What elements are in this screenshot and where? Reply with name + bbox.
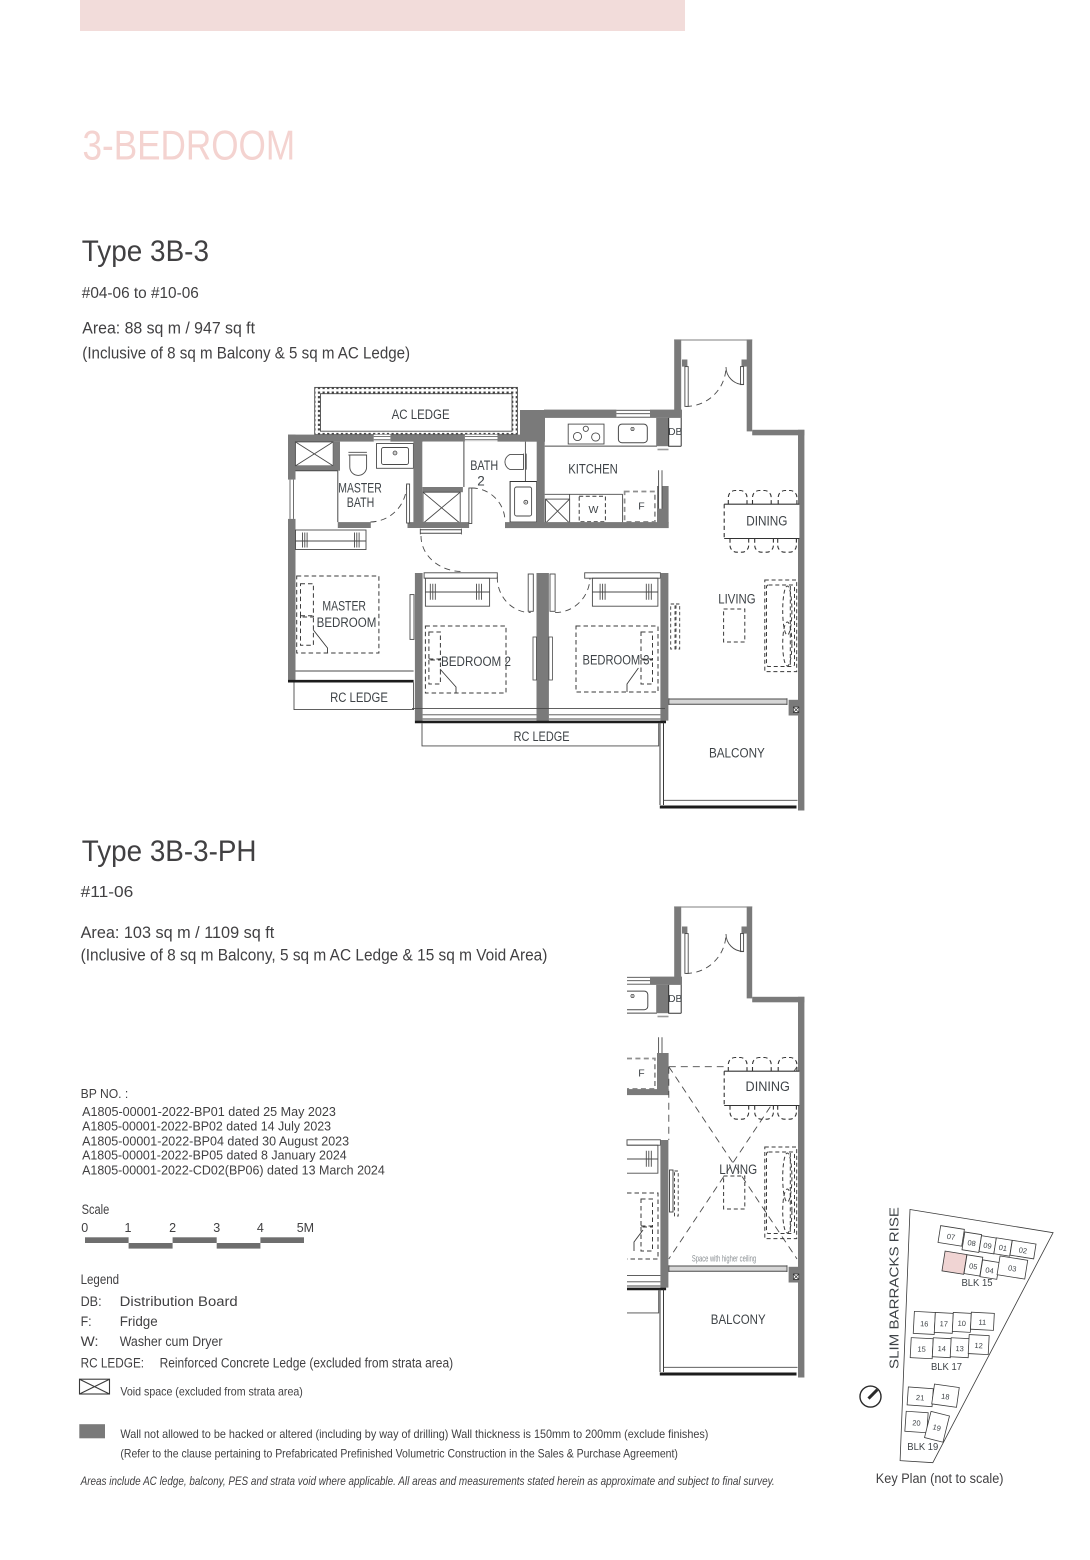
svg-text:F: F bbox=[638, 1068, 644, 1080]
svg-text:Area: 88 sq m / 947 sq ft: Area: 88 sq m / 947 sq ft bbox=[82, 320, 255, 338]
svg-text:01: 01 bbox=[998, 1243, 1008, 1253]
svg-text:MASTER: MASTER bbox=[322, 599, 366, 614]
svg-text:RC LEDGE: RC LEDGE bbox=[514, 729, 570, 744]
svg-text:Wall not allowed to be hacked: Wall not allowed to be hacked or altered… bbox=[120, 1427, 708, 1441]
svg-text:W: W bbox=[589, 504, 599, 516]
svg-text:07: 07 bbox=[946, 1232, 956, 1242]
svg-text:#04-06 to #10-06: #04-06 to #10-06 bbox=[82, 285, 199, 302]
svg-text:(Inclusive of 8 sq m Balcony &: (Inclusive of 8 sq m Balcony & 5 sq m AC… bbox=[82, 345, 410, 363]
svg-text:Washer cum Dryer: Washer cum Dryer bbox=[120, 1334, 223, 1349]
svg-text:BALCONY: BALCONY bbox=[711, 1312, 766, 1327]
svg-text:11: 11 bbox=[978, 1318, 986, 1327]
svg-text:17: 17 bbox=[939, 1319, 948, 1328]
svg-text:12: 12 bbox=[974, 1341, 983, 1350]
svg-text:Fridge: Fridge bbox=[120, 1314, 158, 1329]
svg-text:Areas include AC ledge, balcon: Areas include AC ledge, balcony, PES and… bbox=[80, 1474, 775, 1488]
svg-text:Type 3B-3: Type 3B-3 bbox=[82, 235, 209, 268]
svg-text:03: 03 bbox=[1007, 1263, 1017, 1273]
svg-text:16: 16 bbox=[920, 1319, 929, 1328]
svg-text:DB:: DB: bbox=[81, 1294, 102, 1309]
svg-text:F: F bbox=[638, 501, 644, 513]
svg-text:RC LEDGE: RC LEDGE bbox=[330, 690, 388, 705]
svg-text:04: 04 bbox=[985, 1265, 995, 1275]
svg-text:20: 20 bbox=[912, 1418, 921, 1428]
svg-text:DB: DB bbox=[668, 993, 682, 1005]
svg-text:DB: DB bbox=[668, 426, 682, 438]
svg-text:Area: 103 sq m / 1109 sq ft: Area: 103 sq m / 1109 sq ft bbox=[81, 924, 275, 942]
svg-text:F:: F: bbox=[81, 1314, 92, 1329]
svg-text:A1805-00001-2022-BP02 dated 14: A1805-00001-2022-BP02 dated 14 July 2023 bbox=[82, 1118, 331, 1133]
svg-text:BLK 19: BLK 19 bbox=[907, 1441, 938, 1453]
svg-text:BP NO. :: BP NO. : bbox=[81, 1086, 129, 1101]
svg-text:1: 1 bbox=[125, 1221, 132, 1235]
svg-text:A1805-00001-2022-CD02(BP06) da: A1805-00001-2022-CD02(BP06) dated 13 Mar… bbox=[82, 1163, 385, 1178]
svg-text:4: 4 bbox=[257, 1221, 264, 1235]
svg-text:SLIM BARRACKS RISE: SLIM BARRACKS RISE bbox=[888, 1207, 902, 1369]
svg-text:08: 08 bbox=[967, 1238, 977, 1248]
svg-text:BLK 15: BLK 15 bbox=[962, 1277, 993, 1289]
svg-text:18: 18 bbox=[941, 1392, 951, 1402]
svg-text:BATH: BATH bbox=[347, 495, 375, 510]
svg-text:A1805-00001-2022-BP04 dated 30: A1805-00001-2022-BP04 dated 30 August 20… bbox=[82, 1133, 349, 1148]
svg-text:LIVING: LIVING bbox=[719, 1162, 757, 1177]
svg-text:10: 10 bbox=[957, 1319, 966, 1328]
svg-text:Space with higher ceiling: Space with higher ceiling bbox=[692, 1254, 756, 1264]
svg-text:09: 09 bbox=[983, 1241, 993, 1251]
svg-text:A1805-00001-2022-BP05 dated 8: A1805-00001-2022-BP05 dated 8 January 20… bbox=[82, 1148, 347, 1163]
svg-text:W:: W: bbox=[81, 1334, 99, 1349]
svg-text:5M: 5M bbox=[297, 1221, 314, 1235]
svg-text:BEDROOM: BEDROOM bbox=[317, 615, 377, 630]
svg-text:02: 02 bbox=[1018, 1245, 1028, 1255]
svg-text:AC LEDGE: AC LEDGE bbox=[392, 407, 450, 422]
svg-text:21: 21 bbox=[916, 1393, 925, 1403]
svg-text:DINING: DINING bbox=[746, 514, 787, 529]
svg-text:BALCONY: BALCONY bbox=[709, 746, 765, 761]
svg-text:MASTER: MASTER bbox=[338, 481, 382, 496]
svg-text:BEDROOM 2: BEDROOM 2 bbox=[441, 654, 511, 669]
svg-text:BEDROOM 3: BEDROOM 3 bbox=[583, 653, 650, 668]
svg-text:3-BEDROOM: 3-BEDROOM bbox=[83, 121, 296, 168]
svg-text:Reinforced Concrete Ledge (exc: Reinforced Concrete Ledge (excluded from… bbox=[160, 1356, 454, 1371]
svg-text:Distribution Board: Distribution Board bbox=[120, 1294, 238, 1309]
svg-text:2: 2 bbox=[477, 474, 485, 489]
svg-text:Void space (excluded from stra: Void space (excluded from strata area) bbox=[120, 1385, 302, 1399]
svg-text:Scale: Scale bbox=[82, 1202, 110, 1217]
svg-text:KITCHEN: KITCHEN bbox=[568, 461, 618, 476]
svg-text:Key Plan (not to scale): Key Plan (not to scale) bbox=[876, 1471, 1004, 1486]
svg-text:13: 13 bbox=[955, 1344, 964, 1353]
svg-text:0: 0 bbox=[81, 1221, 88, 1235]
svg-text:05: 05 bbox=[968, 1261, 978, 1271]
svg-text:(Inclusive of 8 sq m Balcony,: (Inclusive of 8 sq m Balcony, 5 sq m AC … bbox=[81, 947, 548, 965]
svg-text:Legend: Legend bbox=[81, 1272, 120, 1287]
svg-text:2: 2 bbox=[169, 1221, 176, 1235]
svg-text:3: 3 bbox=[213, 1221, 220, 1235]
svg-text:#11-06: #11-06 bbox=[81, 884, 134, 901]
svg-text:14: 14 bbox=[937, 1344, 946, 1353]
svg-text:15: 15 bbox=[917, 1344, 926, 1353]
svg-text:A1805-00001-2022-BP01 dated 25: A1805-00001-2022-BP01 dated 25 May 2023 bbox=[82, 1104, 336, 1119]
svg-text:Type 3B-3-PH: Type 3B-3-PH bbox=[82, 835, 257, 868]
svg-text:RC LEDGE:: RC LEDGE: bbox=[81, 1356, 145, 1371]
svg-text:LIVING: LIVING bbox=[718, 592, 755, 607]
svg-text:(Refer to the clause pertainin: (Refer to the clause pertaining to Prefa… bbox=[120, 1447, 678, 1461]
svg-text:DINING: DINING bbox=[746, 1079, 790, 1094]
svg-text:BLK 17: BLK 17 bbox=[931, 1361, 962, 1373]
svg-text:BATH: BATH bbox=[470, 458, 498, 473]
